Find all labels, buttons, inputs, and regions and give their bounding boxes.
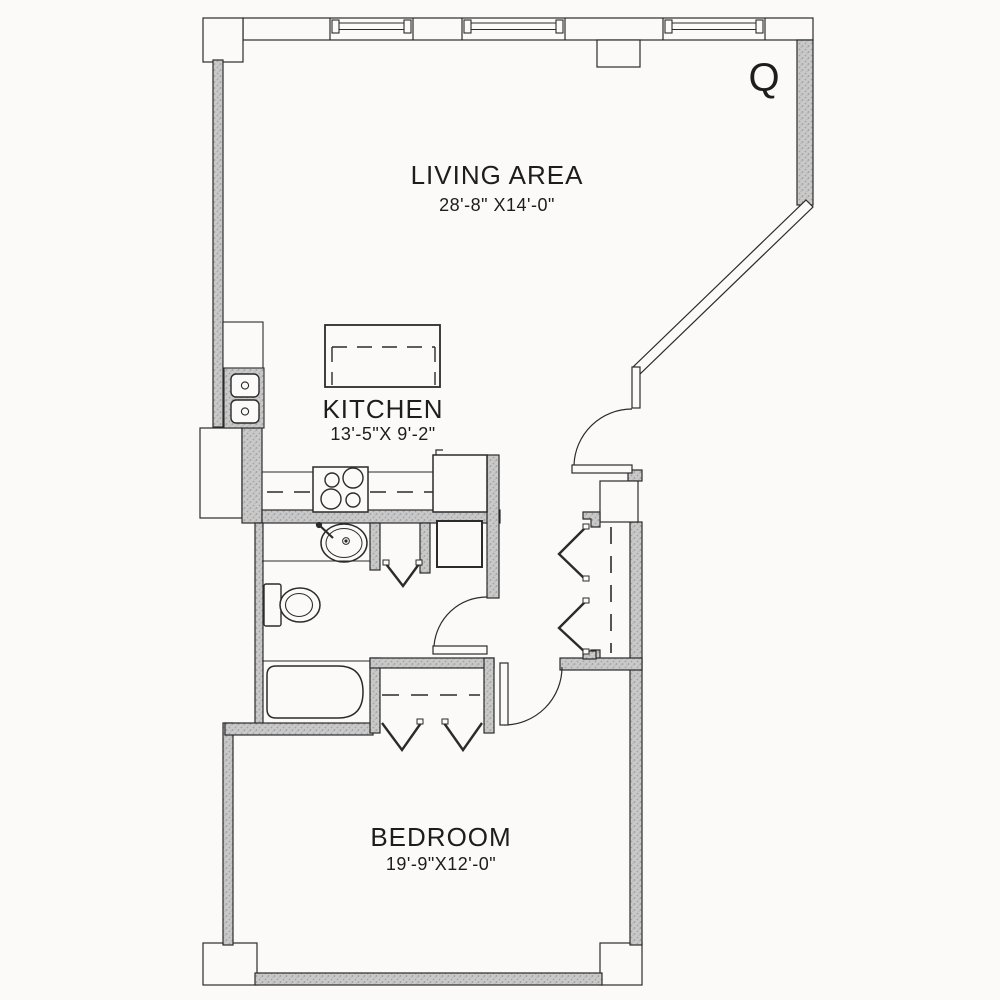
wall-bath-left [255, 523, 263, 733]
bedroom-door-swing [504, 667, 562, 725]
wall-left-upper [213, 60, 223, 427]
hall-closet-bifold-upper [559, 527, 586, 580]
burner [343, 468, 363, 488]
entry-jamb-top [632, 367, 640, 408]
bathroom-door-swing [434, 597, 487, 646]
bifold-cap [583, 576, 589, 581]
wall-bathtub-bottom [225, 723, 373, 735]
toilet-tank [264, 584, 281, 626]
refrigerator [433, 455, 487, 512]
floor-plan-drawing: LIVING AREA 28'-8" X14'-0" KITCHEN 13'-5… [0, 0, 1000, 1000]
sink-drain-dot [345, 540, 347, 542]
burner [346, 493, 360, 507]
wall-bedroom-top-right [560, 658, 642, 670]
burner [325, 473, 339, 487]
bedroom-door-leaf [500, 663, 508, 725]
wall-bedroom-left [223, 723, 233, 945]
wall-bedroom-right [630, 662, 642, 945]
bifold-cap [442, 719, 448, 724]
closet-wall-top [370, 658, 494, 668]
hall-closet-bifold-lower [559, 601, 586, 653]
corner-pillar-bottom-left [203, 943, 257, 985]
bathroom-door-leaf [433, 646, 487, 654]
drain [241, 408, 248, 415]
pillar-kitchen-left [200, 428, 242, 518]
shower-unit [437, 521, 482, 567]
wall-kitchen-bath-right [487, 455, 499, 598]
unit-label: Q [748, 56, 779, 100]
wall-right-mid [630, 522, 642, 662]
floor-plan: LIVING AREA 28'-8" X14'-0" KITCHEN 13'-5… [0, 0, 1000, 1000]
bifold-cap [416, 560, 422, 565]
bifold-cap [417, 719, 423, 724]
bedroom-closet-door-right [444, 723, 482, 750]
corner-pillar-bottom-right [600, 943, 642, 985]
kitchen-counter-left [223, 322, 263, 369]
room-dim-living-area: 28'-8" X14'-0" [439, 195, 555, 215]
wall-right-upper [797, 40, 813, 205]
room-dim-bedroom: 19'-9"X12'-0" [386, 854, 496, 874]
wall-bath-inner-1 [370, 523, 380, 570]
burner [321, 489, 341, 509]
bifold-cap [583, 649, 589, 654]
wall-diagonal [633, 200, 813, 374]
room-label-kitchen: KITCHEN [322, 394, 443, 424]
drain [241, 382, 248, 389]
bathroom-sink [321, 524, 367, 562]
faucet-handle [316, 522, 321, 527]
bathtub [267, 666, 363, 718]
closet-wall-left [370, 658, 380, 733]
room-dim-kitchen: 13'-5"X 9'-2" [330, 424, 435, 444]
corner-pillar-top-left [203, 18, 243, 62]
bifold-cap [383, 560, 389, 565]
kitchen-island [325, 325, 440, 387]
wall-column-jut [597, 40, 640, 67]
wall-kitchen-left [242, 428, 262, 523]
bifold-cap [583, 524, 589, 529]
bifold-cap [583, 598, 589, 603]
bathroom-sink-inner [326, 529, 362, 558]
closet-wall-right [484, 658, 494, 733]
entry-door-swing [574, 409, 632, 465]
entry-pier [600, 481, 638, 522]
room-label-bedroom: BEDROOM [370, 822, 511, 852]
wall-bedroom-bottom [255, 973, 602, 985]
entry-door-leaf [572, 465, 632, 473]
bedroom-closet-door-left [382, 723, 421, 750]
labels: LIVING AREA 28'-8" X14'-0" KITCHEN 13'-5… [322, 56, 779, 874]
room-label-living-area: LIVING AREA [411, 160, 584, 190]
bath-closet-door [386, 564, 419, 586]
